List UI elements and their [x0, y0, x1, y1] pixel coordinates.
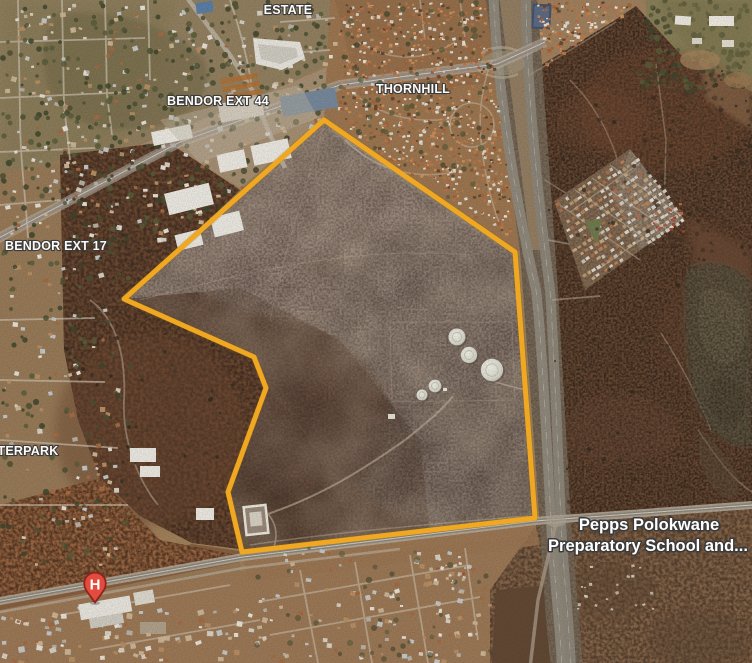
svg-text:Preparatory School and...: Preparatory School and... [548, 537, 748, 555]
svg-text:H: H [90, 577, 101, 594]
svg-text:BENDOR EXT 44: BENDOR EXT 44 [167, 94, 269, 108]
svg-text:THORNHILL: THORNHILL [376, 82, 450, 96]
svg-text:ESTATE: ESTATE [264, 3, 313, 17]
svg-text:TERPARK: TERPARK [0, 444, 58, 458]
svg-text:Pepps Polokwane: Pepps Polokwane [579, 516, 719, 534]
svg-text:BENDOR EXT 17: BENDOR EXT 17 [5, 239, 107, 253]
